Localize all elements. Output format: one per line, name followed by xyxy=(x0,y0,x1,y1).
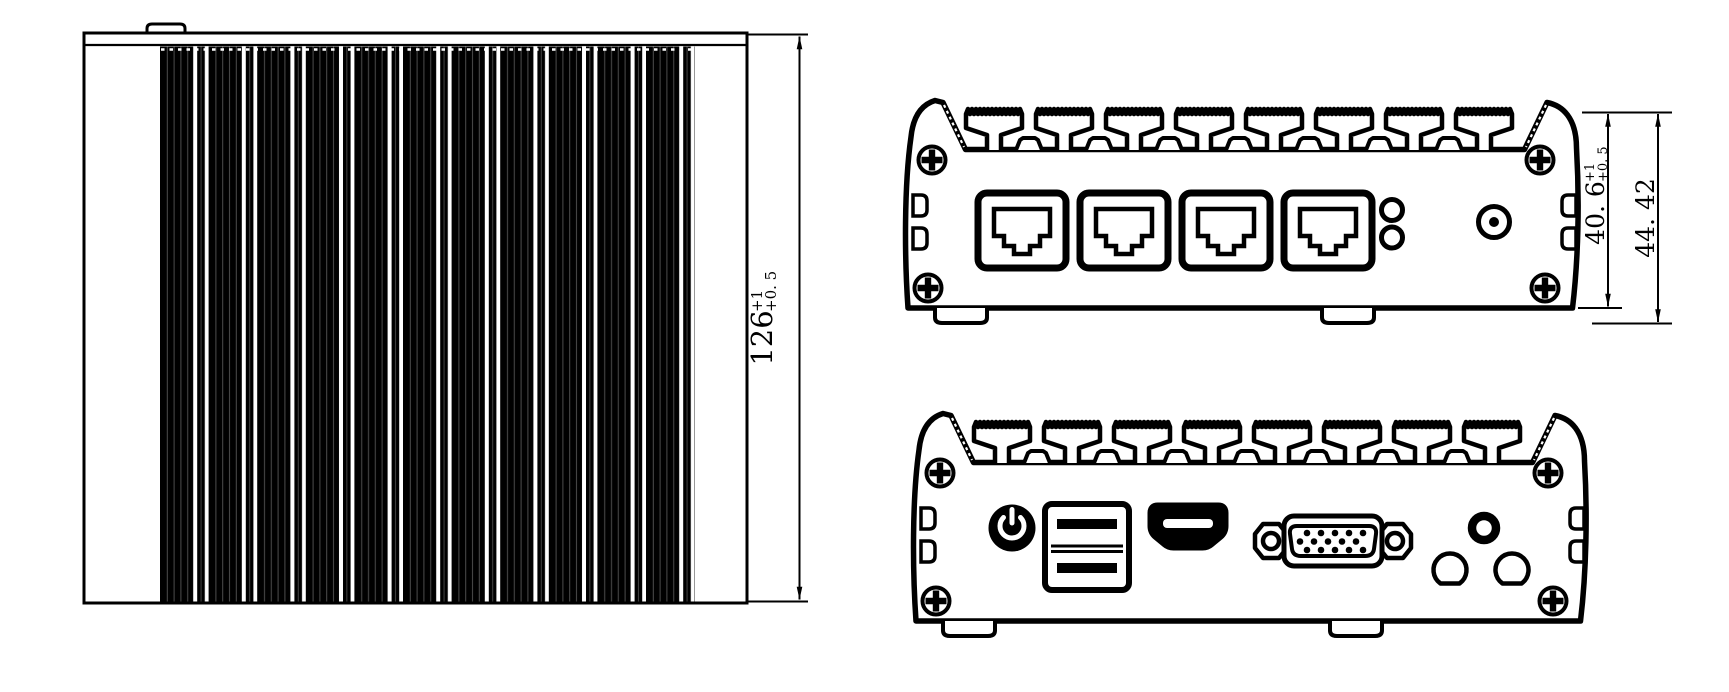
dc-power-jack xyxy=(1479,207,1510,238)
usb-ports xyxy=(1045,504,1129,590)
front-view: 40. 6 +1 +0. 5 44. 42 xyxy=(906,101,1672,324)
dimension-40-6-tol-lower: +0. 5 xyxy=(1596,146,1611,182)
ethernet-port-4 xyxy=(1284,193,1372,268)
antenna-hole-1 xyxy=(1434,554,1467,584)
power-button-icon xyxy=(989,505,1036,552)
ethernet-port-1 xyxy=(978,193,1066,268)
antenna-hole-2 xyxy=(1495,554,1528,584)
dimension-44-42-value: 44. 42 xyxy=(1631,178,1660,258)
technical-drawing-canvas: 126 +1 +0. 5 40. 6 +1 +0. 5 xyxy=(0,0,1729,692)
led-indicator xyxy=(1382,200,1403,221)
dimension-126-value: 126 xyxy=(745,310,779,365)
top-view: 126 +1 +0. 5 xyxy=(84,24,808,603)
dimension-126-tol-lower: +0. 5 xyxy=(762,271,780,312)
usb-tongue xyxy=(1057,519,1117,529)
dimension-40-6-value: 40. 6 xyxy=(1581,181,1610,245)
audio-jack xyxy=(1472,516,1496,540)
rear-view xyxy=(914,414,1587,637)
vga-port xyxy=(1255,516,1411,566)
fanless-mini-pc-drawing: 126 +1 +0. 5 40. 6 +1 +0. 5 xyxy=(0,0,1729,692)
hdmi-port xyxy=(1150,505,1226,548)
ethernet-port-3 xyxy=(1182,193,1270,268)
usb-tongue xyxy=(1057,563,1117,573)
led-indicator xyxy=(1382,227,1403,248)
dimension-126: 126 +1 +0. 5 xyxy=(745,35,808,602)
ethernet-port-2 xyxy=(1080,193,1168,268)
heatsink-fins-top xyxy=(160,47,695,602)
